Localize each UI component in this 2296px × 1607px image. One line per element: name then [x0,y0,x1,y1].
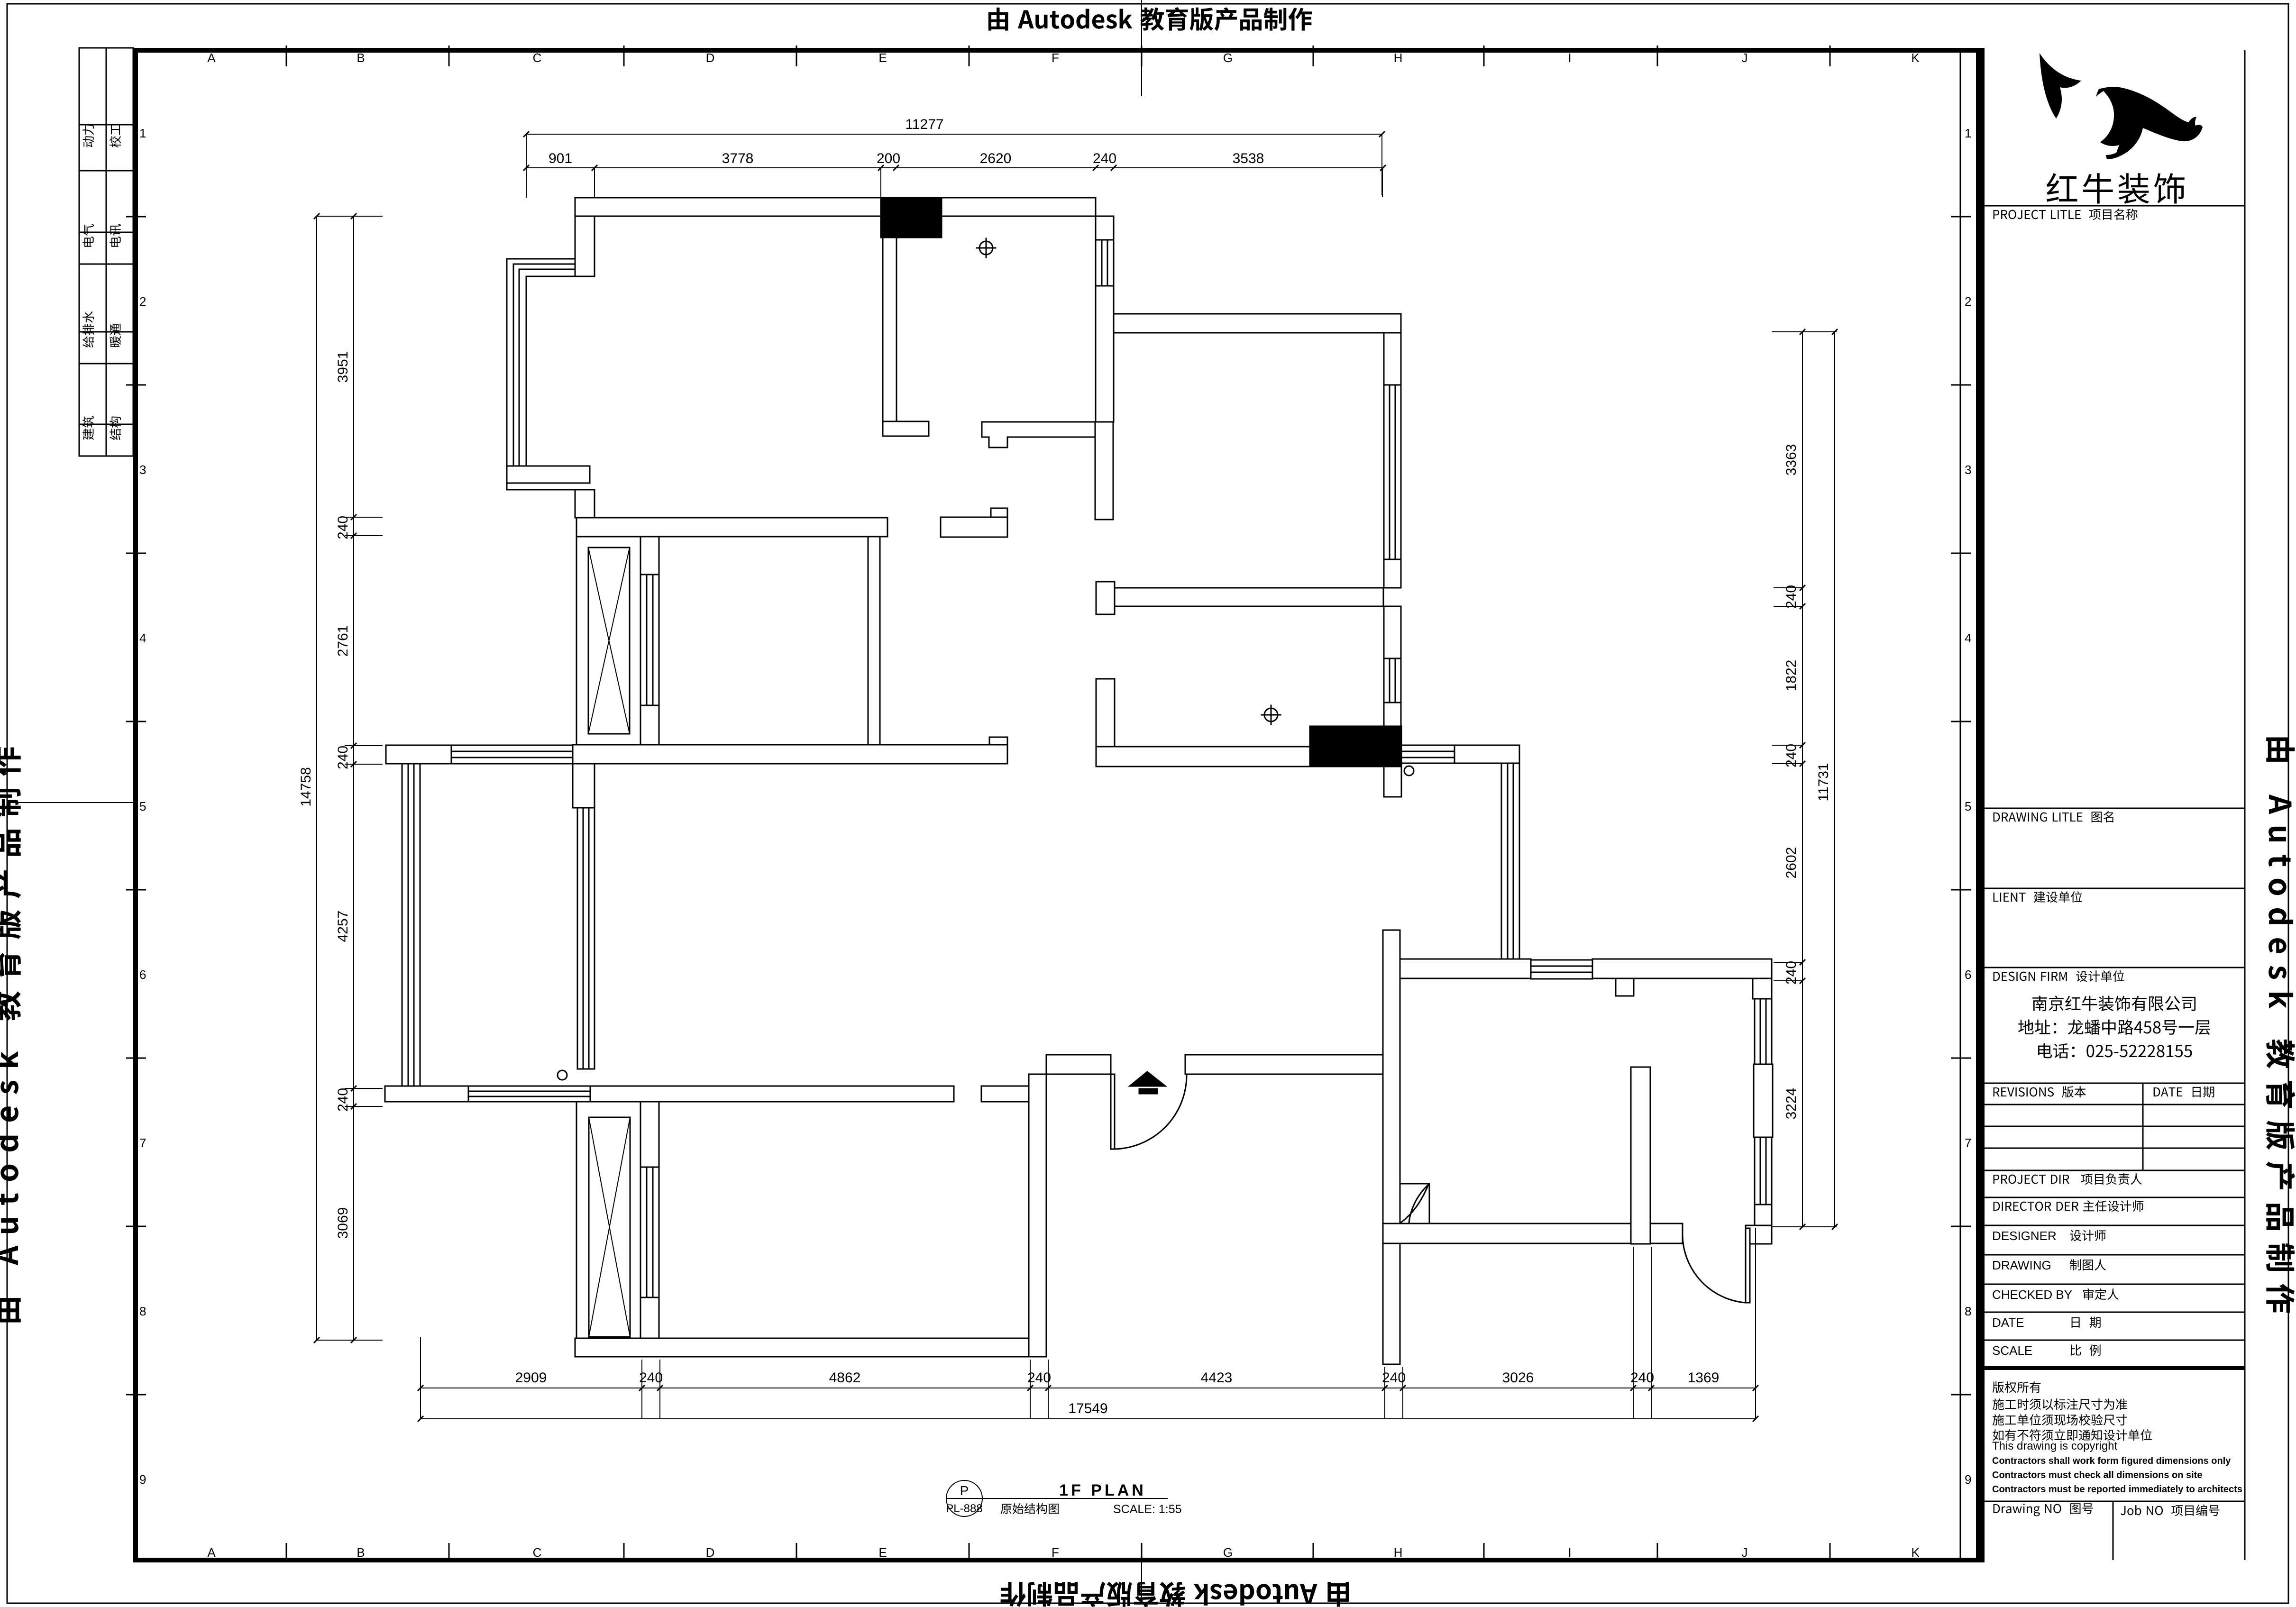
svg-text:17549: 17549 [1068,1401,1107,1416]
svg-text:1: 1 [139,126,146,140]
svg-text:3: 3 [1965,463,1971,477]
svg-text:E: E [878,1545,887,1560]
svg-text:B: B [357,51,365,65]
svg-text:1: 1 [1965,126,1971,140]
svg-text:Contractors must check all dim: Contractors must check all dimensions on… [1992,1470,2202,1480]
svg-text:240: 240 [1784,961,1799,985]
svg-text:240: 240 [1630,1370,1654,1386]
svg-text:B: B [357,1545,365,1560]
svg-text:2909: 2909 [515,1370,547,1386]
svg-text:240: 240 [1784,585,1799,609]
svg-text:5: 5 [1965,799,1971,813]
svg-text:PL-888: PL-888 [946,1502,982,1515]
svg-text:6: 6 [139,968,146,982]
svg-text:7: 7 [139,1136,146,1150]
svg-text:4257: 4257 [335,911,351,942]
svg-text:CHECKED BY: CHECKED BY [1992,1287,2072,1302]
svg-text:2602: 2602 [1784,847,1799,879]
svg-text:9: 9 [1965,1472,1971,1487]
svg-text:SCALE: 1:55: SCALE: 1:55 [1113,1503,1182,1516]
svg-text:240: 240 [335,516,351,539]
svg-text:I: I [1568,51,1571,65]
svg-text:240: 240 [1093,151,1116,166]
svg-text:C: C [533,1545,542,1560]
svg-text:I: I [1568,1545,1571,1560]
svg-text:D: D [706,1545,715,1560]
svg-text:1F PLAN: 1F PLAN [1059,1481,1146,1499]
svg-text:DESIGNER: DESIGNER [1992,1229,2057,1243]
svg-text:4: 4 [1965,631,1971,645]
svg-text:240: 240 [1027,1370,1051,1386]
svg-text:G: G [1223,1545,1233,1560]
svg-text:4: 4 [139,631,146,645]
svg-text:F: F [1052,1545,1059,1560]
svg-text:F: F [1052,51,1059,65]
svg-text:1369: 1369 [1688,1370,1720,1386]
svg-text:3069: 3069 [335,1207,351,1239]
svg-text:1822: 1822 [1784,660,1799,692]
svg-text:4862: 4862 [829,1370,861,1386]
svg-text:DATE: DATE [1992,1315,2024,1330]
svg-text:3224: 3224 [1784,1088,1799,1120]
svg-text:200: 200 [877,151,900,166]
svg-text:D: D [706,51,715,65]
svg-text:DRAWING: DRAWING [1992,1258,2051,1272]
svg-text:G: G [1223,51,1233,65]
svg-text:2: 2 [139,294,146,309]
svg-text:11731: 11731 [1816,763,1831,801]
svg-text:Contractors shall work form fi: Contractors shall work form figured dime… [1992,1456,2231,1466]
svg-text:J: J [1742,51,1748,65]
svg-text:H: H [1394,1545,1403,1560]
svg-text:7: 7 [1965,1136,1971,1150]
svg-text:3538: 3538 [1233,151,1264,166]
svg-text:3951: 3951 [335,351,351,383]
svg-text:C: C [533,51,542,65]
svg-text:K: K [1911,1545,1920,1560]
svg-text:H: H [1394,51,1403,65]
svg-text:3778: 3778 [722,151,754,166]
svg-text:4423: 4423 [1201,1370,1233,1386]
svg-text:8: 8 [1965,1304,1971,1318]
svg-text:J: J [1742,1545,1748,1560]
svg-text:A: A [207,1545,216,1560]
svg-text:240: 240 [639,1370,663,1386]
svg-text:240: 240 [335,746,351,769]
svg-text:3: 3 [139,463,146,477]
svg-text:240: 240 [1382,1370,1406,1386]
svg-text:SCALE: SCALE [1992,1343,2032,1358]
svg-text:240: 240 [1784,744,1799,767]
svg-text:901: 901 [549,151,572,166]
svg-text:5: 5 [139,799,146,813]
svg-text:240: 240 [335,1088,351,1112]
svg-text:14758: 14758 [298,767,314,806]
svg-text:A: A [207,51,216,65]
svg-text:3363: 3363 [1784,444,1799,476]
svg-text:2: 2 [1965,294,1971,309]
svg-text:9: 9 [139,1472,146,1487]
svg-text:3026: 3026 [1502,1370,1534,1386]
svg-text:P: P [960,1483,969,1498]
svg-text:K: K [1911,51,1920,65]
svg-text:E: E [878,51,887,65]
svg-text:11277: 11277 [905,117,943,132]
svg-text:Contractors must be reported i: Contractors must be reported immediately… [1992,1484,2242,1495]
svg-text:6: 6 [1965,968,1971,982]
svg-text:This drawing is copyright: This drawing is copyright [1992,1440,2117,1452]
svg-text:8: 8 [139,1304,146,1318]
svg-text:2761: 2761 [335,625,351,657]
svg-text:2620: 2620 [980,151,1012,166]
